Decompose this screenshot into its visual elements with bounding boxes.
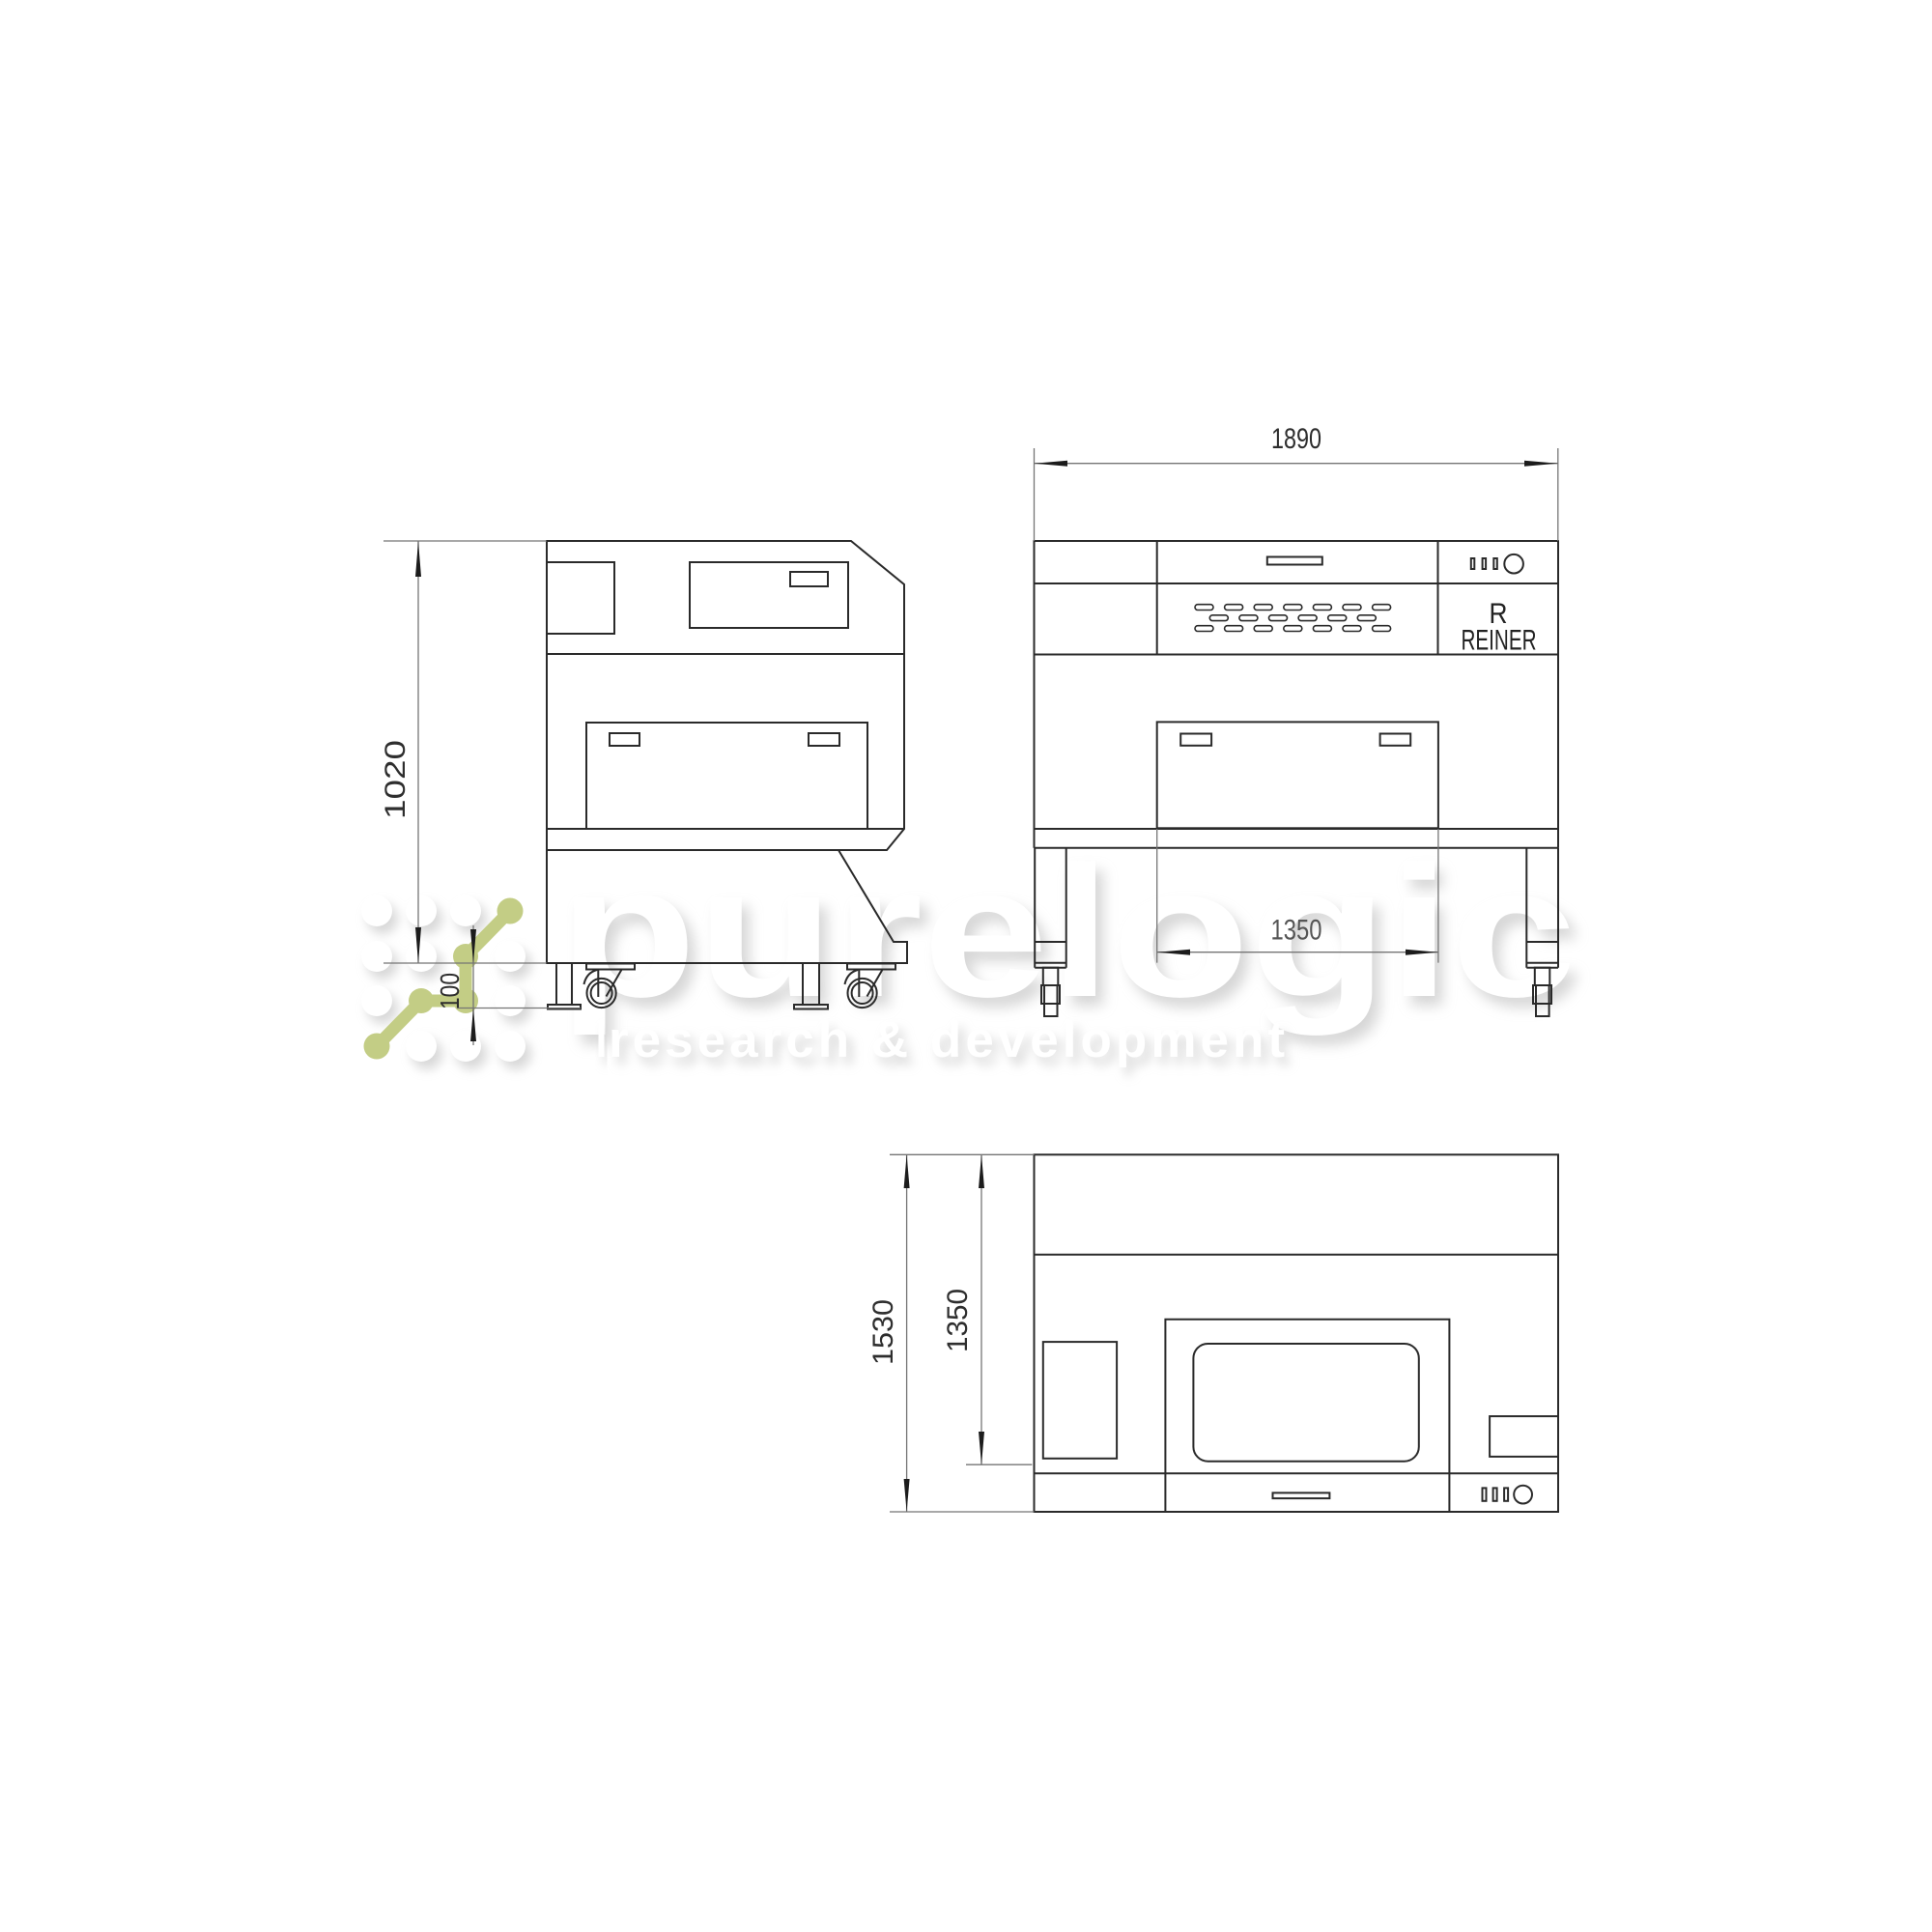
svg-text:REINER: REINER: [1462, 624, 1537, 656]
svg-text:research & development: research & development: [609, 1011, 1285, 1068]
svg-text:1020: 1020: [380, 740, 412, 819]
svg-text:1350: 1350: [942, 1289, 974, 1352]
svg-text:1350: 1350: [1271, 915, 1322, 947]
svg-text:purelogic: purelogic: [558, 827, 1577, 1036]
svg-text:100: 100: [435, 973, 465, 1009]
svg-text:1890: 1890: [1271, 423, 1321, 455]
svg-text:1530: 1530: [867, 1299, 899, 1365]
